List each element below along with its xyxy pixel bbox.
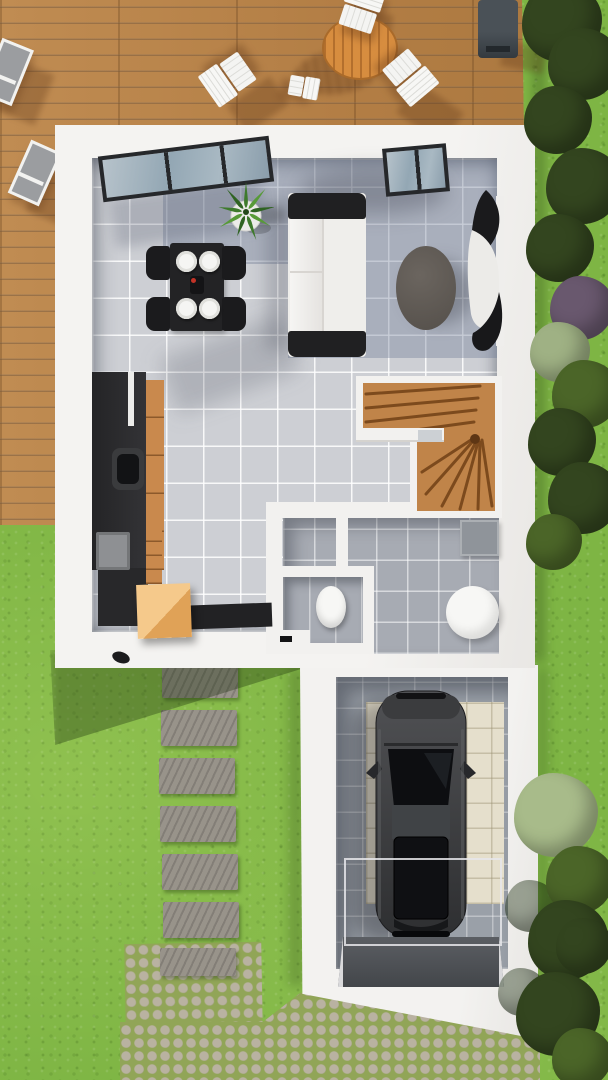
tv-sideboard bbox=[458, 188, 506, 358]
paver bbox=[163, 902, 239, 938]
sofa bbox=[288, 193, 366, 357]
plate bbox=[176, 251, 197, 272]
paver bbox=[159, 758, 235, 794]
sofa-seam bbox=[290, 271, 322, 273]
garage-railing bbox=[344, 858, 502, 946]
deck-chair bbox=[284, 71, 322, 103]
table-centerpiece bbox=[190, 276, 204, 294]
dining-chair bbox=[146, 246, 170, 280]
floor-plan-scene: const data = JSON.parse(document.getElem… bbox=[0, 0, 608, 1080]
coffee-table bbox=[396, 246, 456, 330]
paver bbox=[160, 948, 236, 976]
window bbox=[382, 143, 450, 196]
plate bbox=[176, 298, 197, 319]
barbecue-grill bbox=[478, 0, 518, 58]
kitchen-drawers-wood bbox=[146, 528, 162, 584]
shower-tray bbox=[446, 586, 499, 639]
paver bbox=[161, 710, 237, 746]
doormat bbox=[190, 603, 273, 630]
sofa-back-cushions bbox=[290, 219, 322, 331]
storage-crate bbox=[136, 583, 192, 639]
tree-blob bbox=[552, 1028, 608, 1080]
sofa-armrest bbox=[288, 193, 366, 219]
wc-step bbox=[276, 630, 310, 648]
dining-chair bbox=[146, 297, 170, 331]
plate bbox=[199, 298, 220, 319]
fridge-gleam bbox=[128, 372, 134, 426]
toilet bbox=[316, 586, 346, 628]
winder-staircase bbox=[356, 376, 502, 518]
kitchen-sink bbox=[112, 448, 144, 490]
paver bbox=[162, 854, 238, 890]
hedge-blob bbox=[546, 148, 608, 224]
dining-chair bbox=[222, 297, 246, 331]
sofa-seam bbox=[322, 219, 324, 331]
paver bbox=[160, 806, 236, 842]
potted-plant bbox=[216, 176, 274, 242]
plate bbox=[199, 251, 220, 272]
bathroom-vanity bbox=[460, 520, 499, 556]
kitchen-appliance bbox=[96, 532, 130, 570]
sofa-armrest bbox=[288, 331, 366, 357]
dining-chair bbox=[222, 246, 246, 280]
tree-blob bbox=[556, 918, 608, 974]
